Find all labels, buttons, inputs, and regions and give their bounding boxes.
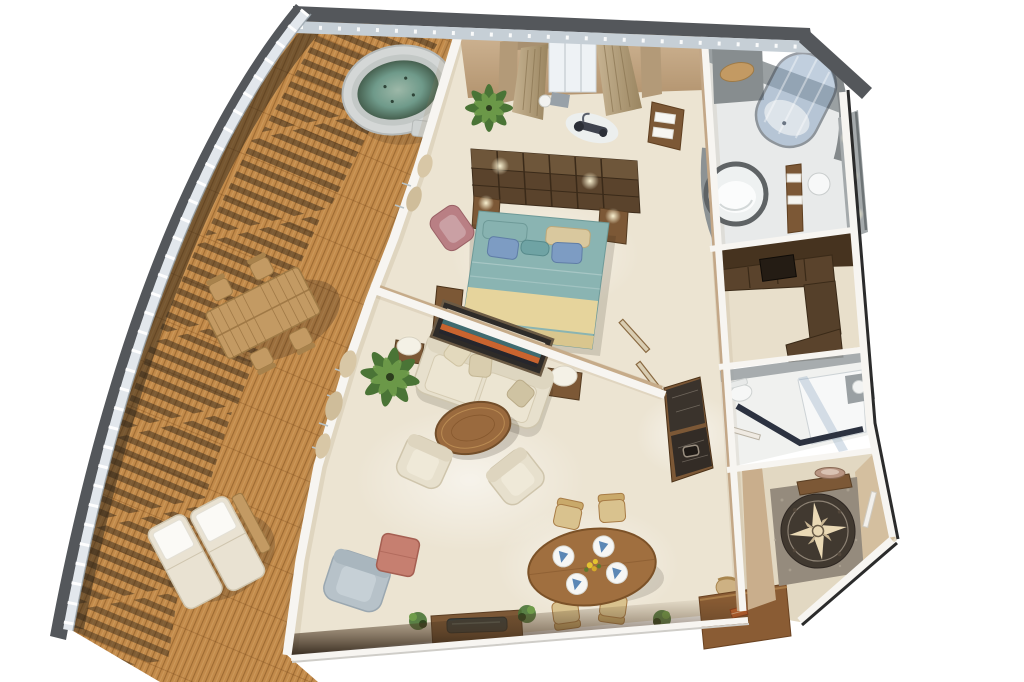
towel-ladder: [786, 164, 803, 233]
bedroom-palm-plant: [465, 84, 513, 132]
dining-chair: [553, 498, 584, 531]
floor-plan-stage: [0, 0, 1024, 682]
ottoman: [375, 532, 420, 577]
floor-plan-render: [0, 0, 1024, 682]
towel-cabinet: [648, 102, 684, 150]
dining-chair: [598, 493, 626, 523]
window: [549, 40, 596, 92]
sink-basin: [808, 173, 830, 195]
luggage-case: [760, 255, 797, 282]
